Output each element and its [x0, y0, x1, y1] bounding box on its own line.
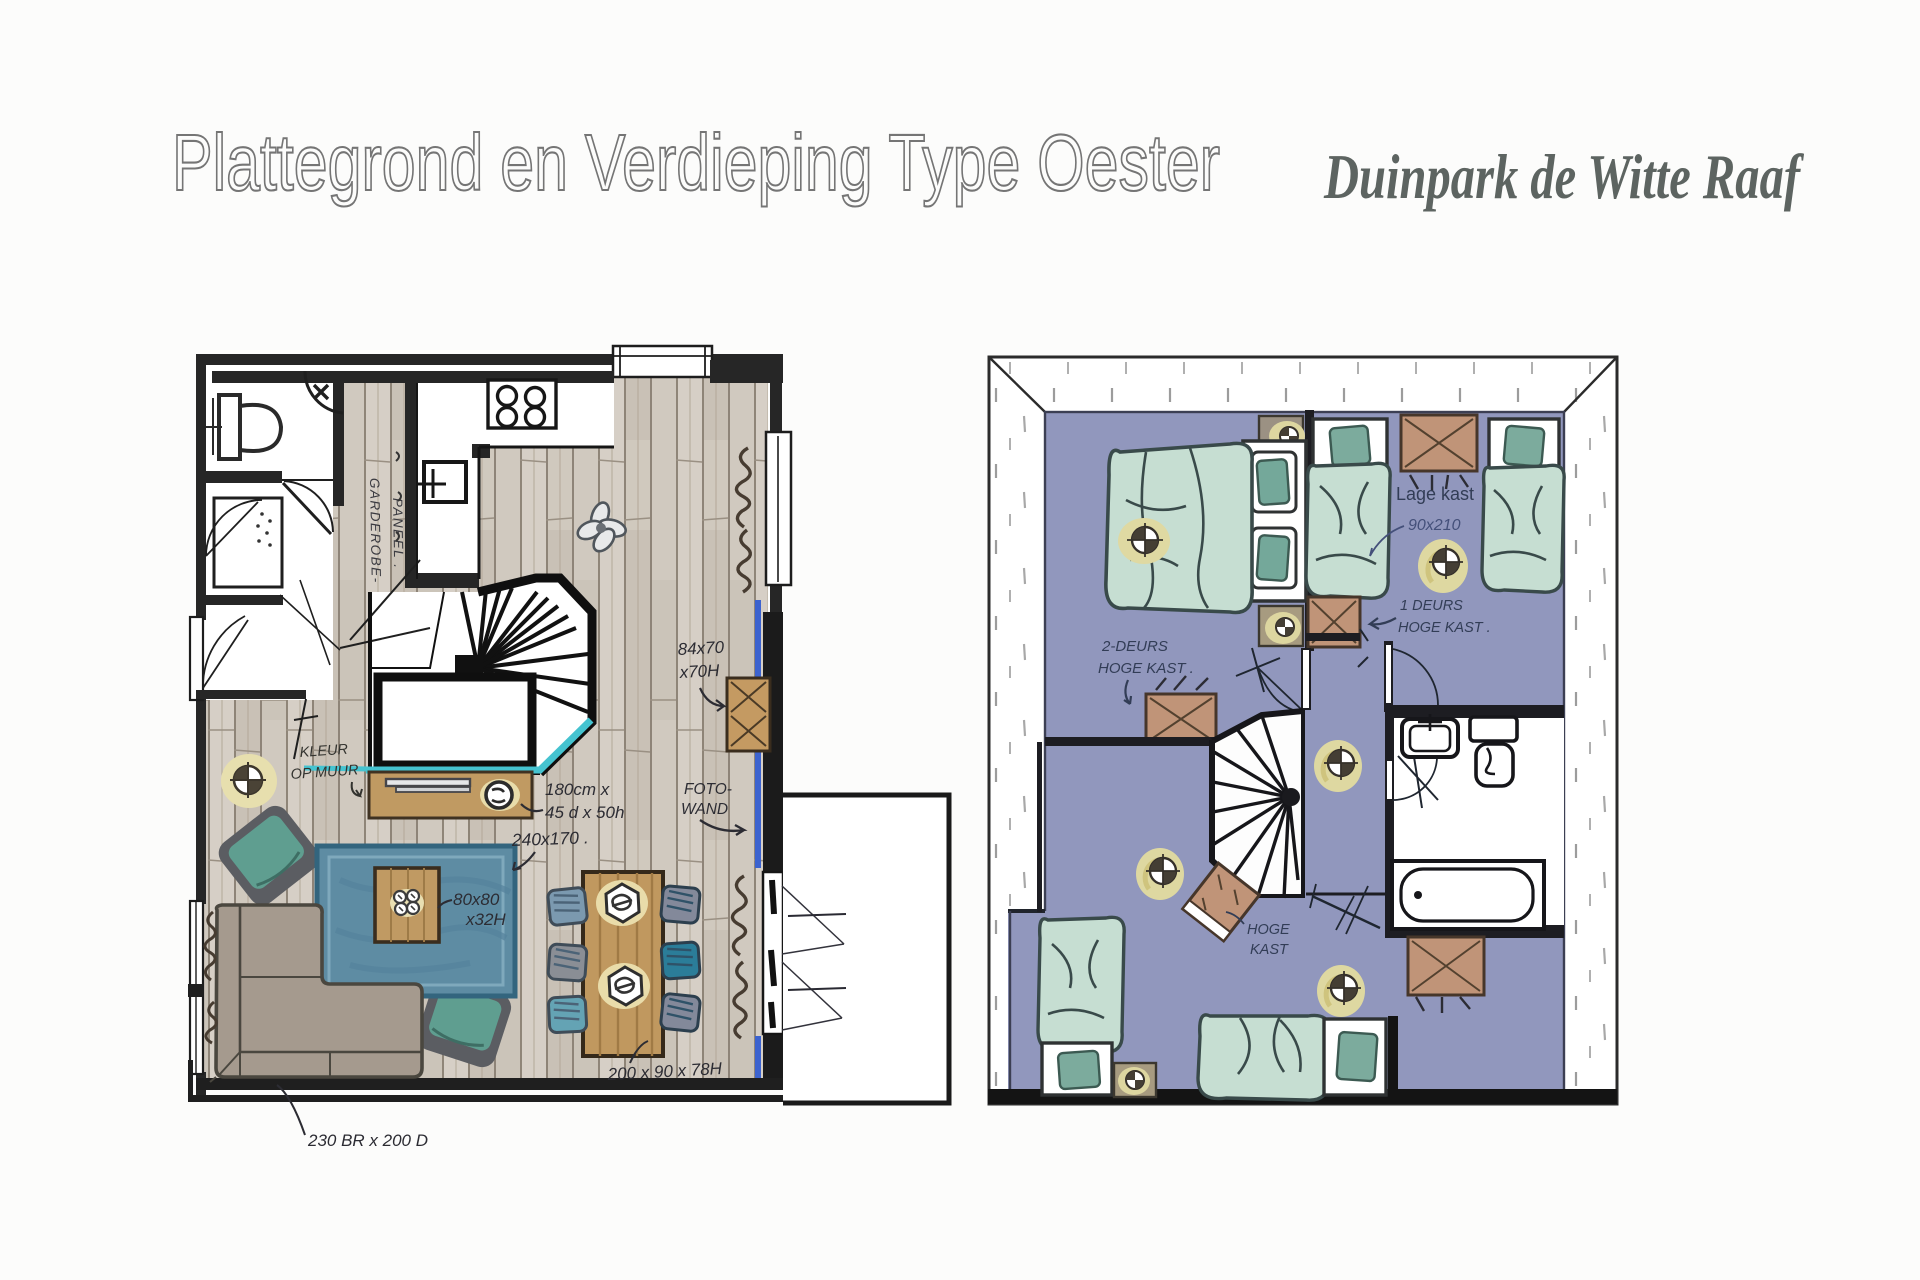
svg-text:Lage kast: Lage kast [1396, 484, 1474, 504]
svg-text:HOGE KAST .: HOGE KAST . [1398, 620, 1491, 636]
svg-text:KAST: KAST [1250, 942, 1289, 958]
svg-text:x32H: x32H [465, 910, 506, 929]
svg-text:HOGE: HOGE [1247, 922, 1290, 938]
svg-text:Plattegrond en Verdieping Type: Plattegrond en Verdieping Type Oester [172, 118, 1220, 207]
svg-text:180cm x: 180cm x [545, 780, 610, 799]
svg-text:x70H: x70H [678, 661, 720, 682]
svg-text:WAND: WAND [681, 801, 728, 818]
svg-text:240x170 .: 240x170 . [510, 827, 589, 850]
svg-text:KLEUR: KLEUR [299, 742, 349, 761]
svg-text:230 BR x 200 D: 230 BR x 200 D [307, 1131, 428, 1150]
svg-text:FOTO-: FOTO- [684, 781, 732, 798]
svg-text:1 DEURS: 1 DEURS [1400, 598, 1463, 614]
svg-text:90x210: 90x210 [1408, 517, 1461, 534]
svg-text:2-DEURS: 2-DEURS [1101, 638, 1168, 655]
svg-text:45 d x 50h: 45 d x 50h [545, 803, 624, 822]
svg-text:HOGE KAST .: HOGE KAST . [1098, 660, 1194, 677]
svg-text:80x80: 80x80 [453, 890, 500, 909]
svg-text:Duinpark de Witte Raaf: Duinpark de Witte Raaf [1323, 141, 1804, 212]
svg-text:GARDEROBE-: GARDEROBE- [367, 478, 384, 584]
svg-text:84x70: 84x70 [677, 638, 725, 659]
